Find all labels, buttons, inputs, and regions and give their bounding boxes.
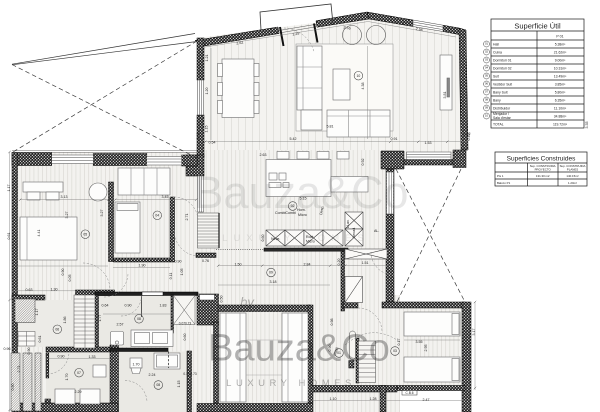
svg-text:34.88m²: 34.88m² [554, 114, 567, 118]
svg-text:Bauza&Co: Bauza&Co [208, 328, 390, 370]
svg-text:C.B.6: C.B.6 [406, 391, 414, 395]
svg-text:3.13: 3.13 [61, 195, 68, 199]
svg-text:1.30: 1.30 [51, 288, 58, 292]
svg-text:04: 04 [485, 66, 489, 70]
svg-text:2.95: 2.95 [424, 345, 428, 352]
svg-text:Suit: Suit [493, 74, 499, 78]
svg-text:06: 06 [55, 328, 59, 332]
svg-text:4.38: 4.38 [361, 83, 365, 90]
svg-text:1.15: 1.15 [177, 381, 181, 388]
svg-text:2.29: 2.29 [75, 390, 82, 394]
svg-text:PLANES: PLANES [567, 168, 578, 172]
svg-text:Cuina: Cuina [493, 50, 502, 54]
svg-text:0.63: 0.63 [26, 288, 33, 292]
svg-text:10: 10 [357, 74, 361, 78]
svg-text:0.05: 0.05 [68, 275, 72, 282]
svg-text:3.45: 3.45 [162, 195, 169, 199]
svg-text:03: 03 [393, 349, 397, 353]
svg-text:140.15m²: 140.15m² [566, 174, 578, 178]
svg-text:1.05: 1.05 [180, 269, 184, 276]
svg-text:0.90: 0.90 [58, 355, 65, 359]
svg-text:2.84: 2.84 [304, 263, 311, 267]
svg-text:3.85m²: 3.85m² [555, 82, 566, 86]
svg-text:5.42: 5.42 [290, 137, 297, 141]
svg-text:0.60: 0.60 [183, 334, 187, 341]
svg-text:3.17: 3.17 [472, 329, 476, 336]
svg-text:0.64: 0.64 [102, 304, 109, 308]
svg-text:1.33: 1.33 [89, 355, 96, 359]
svg-text:06: 06 [485, 82, 489, 86]
svg-text:119.72m²: 119.72m² [553, 122, 568, 126]
svg-text:08: 08 [137, 317, 141, 321]
svg-text:0.11: 0.11 [169, 273, 173, 280]
svg-text:131.30 m2: 131.30 m2 [536, 174, 550, 178]
svg-text:1.20m²: 1.20m² [568, 181, 577, 185]
svg-text:1.21: 1.21 [205, 55, 209, 62]
svg-text:07: 07 [77, 371, 81, 375]
svg-text:0.17: 0.17 [397, 339, 401, 346]
svg-text:0.13 0.73: 0.13 0.73 [183, 372, 197, 376]
svg-text:0.50: 0.50 [220, 296, 224, 303]
svg-text:08: 08 [156, 383, 160, 387]
svg-text:3.27: 3.27 [65, 212, 69, 219]
svg-text:2.71: 2.71 [185, 214, 189, 221]
svg-text:0.070.73: 0.070.73 [179, 322, 192, 326]
svg-text:1.51: 1.51 [362, 261, 369, 265]
svg-text:1.53: 1.53 [425, 141, 432, 145]
svg-text:LUXURY HOMES: LUXURY HOMES [226, 378, 356, 389]
svg-text:Bany: Bany [493, 98, 501, 102]
svg-text:TOTAL: TOTAL [493, 122, 504, 126]
svg-text:Vestidor Suit: Vestidor Suit [493, 82, 512, 86]
svg-text:0.76: 0.76 [202, 259, 209, 263]
svg-text:1.77: 1.77 [98, 315, 102, 322]
svg-text:10.31m²: 10.31m² [554, 66, 567, 70]
svg-text:1.83: 1.83 [160, 304, 167, 308]
svg-text:05: 05 [485, 74, 489, 78]
svg-text:3.18: 3.18 [270, 280, 277, 284]
svg-text:3.55: 3.55 [416, 340, 423, 344]
svg-text:LUXURY HOMES: LUXURY HOMES [222, 233, 370, 244]
svg-text:0.90: 0.90 [11, 384, 15, 391]
svg-text:1.70: 1.70 [65, 374, 69, 381]
svg-text:10: 10 [485, 114, 489, 118]
svg-text:1.17: 1.17 [35, 309, 39, 316]
svg-text:0.91: 0.91 [391, 137, 398, 141]
svg-text:0.90: 0.90 [27, 348, 31, 355]
svg-text:0.90: 0.90 [175, 260, 182, 264]
svg-text:1.50: 1.50 [235, 263, 242, 267]
svg-text:0.40: 0.40 [196, 133, 200, 140]
svg-text:2.57: 2.57 [117, 323, 124, 327]
svg-text:2.71: 2.71 [17, 366, 21, 373]
svg-text:0.40: 0.40 [467, 134, 471, 141]
svg-text:2.63: 2.63 [260, 153, 267, 157]
svg-text:02: 02 [485, 50, 489, 54]
svg-text:21.62m²: 21.62m² [554, 50, 567, 54]
svg-text:0.54: 0.54 [209, 141, 216, 145]
svg-text:PROYECTO: PROYECTO [535, 168, 552, 172]
svg-text:08: 08 [485, 98, 489, 102]
svg-text:07: 07 [485, 90, 489, 94]
svg-text:Pis 1: Pis 1 [497, 174, 504, 178]
svg-text:0.90: 0.90 [125, 304, 132, 308]
svg-text:Hall: Hall [493, 42, 499, 46]
svg-text:09: 09 [269, 271, 273, 275]
svg-text:3.81: 3.81 [443, 92, 447, 99]
svg-text:Dormitori 02: Dormitori 02 [493, 66, 512, 70]
svg-text:09: 09 [485, 106, 489, 110]
svg-text:1.70: 1.70 [133, 363, 140, 367]
svg-text:05: 05 [83, 232, 87, 236]
svg-text:Sala d'estar: Sala d'estar [493, 116, 512, 120]
svg-text:Bany Suit: Bany Suit [493, 90, 508, 94]
svg-text:1.90: 1.90 [139, 264, 146, 268]
svg-text:Superficies Construides: Superficies Construides [507, 156, 576, 163]
svg-text:3.27: 3.27 [100, 210, 104, 217]
svg-text:0.98: 0.98 [330, 319, 334, 326]
svg-text:0.20: 0.20 [337, 259, 341, 266]
svg-text:1.20: 1.20 [205, 88, 209, 95]
svg-text:by: by [240, 295, 255, 310]
svg-text:LLav.: LLav. [346, 219, 350, 228]
svg-text:11.10m²: 11.10m² [554, 106, 567, 110]
svg-text:Bauza&Co: Bauza&Co [193, 167, 408, 218]
svg-text:Balcón P1: Balcón P1 [497, 181, 511, 185]
svg-text:AL.: AL. [374, 229, 379, 233]
svg-text:2.24: 2.24 [149, 373, 156, 377]
svg-text:6.35m²: 6.35m² [555, 98, 566, 102]
svg-text:1.15: 1.15 [205, 126, 209, 133]
svg-text:9.00m²: 9.00m² [555, 58, 566, 62]
svg-text:Distribuidor: Distribuidor [493, 106, 511, 110]
svg-text:0.61: 0.61 [38, 336, 42, 343]
svg-text:1.86: 1.86 [63, 317, 67, 324]
svg-text:0.92: 0.92 [361, 159, 365, 166]
svg-text:1.17: 1.17 [7, 185, 11, 192]
svg-text:5.38m²: 5.38m² [555, 42, 566, 46]
svg-text:P 01: P 01 [556, 35, 563, 39]
svg-text:04: 04 [155, 214, 159, 218]
svg-text:Dormitori 01: Dormitori 01 [493, 58, 512, 62]
svg-text:13.49m²: 13.49m² [554, 74, 567, 78]
svg-text:3.35: 3.35 [585, 122, 589, 129]
svg-text:1.28: 1.28 [370, 397, 377, 401]
svg-text:Superficie Útil: Superficie Útil [514, 22, 561, 31]
svg-text:1.10: 1.10 [330, 397, 337, 401]
svg-text:01: 01 [485, 42, 489, 46]
svg-text:2.47: 2.47 [423, 398, 430, 402]
svg-text:0.90: 0.90 [61, 269, 65, 276]
svg-text:5.80m²: 5.80m² [555, 90, 566, 94]
svg-text:0.61: 0.61 [7, 233, 11, 240]
svg-text:4.41: 4.41 [37, 230, 41, 237]
svg-text:03: 03 [485, 58, 489, 62]
svg-text:5.81: 5.81 [327, 125, 334, 129]
svg-text:0.96: 0.96 [4, 347, 11, 351]
